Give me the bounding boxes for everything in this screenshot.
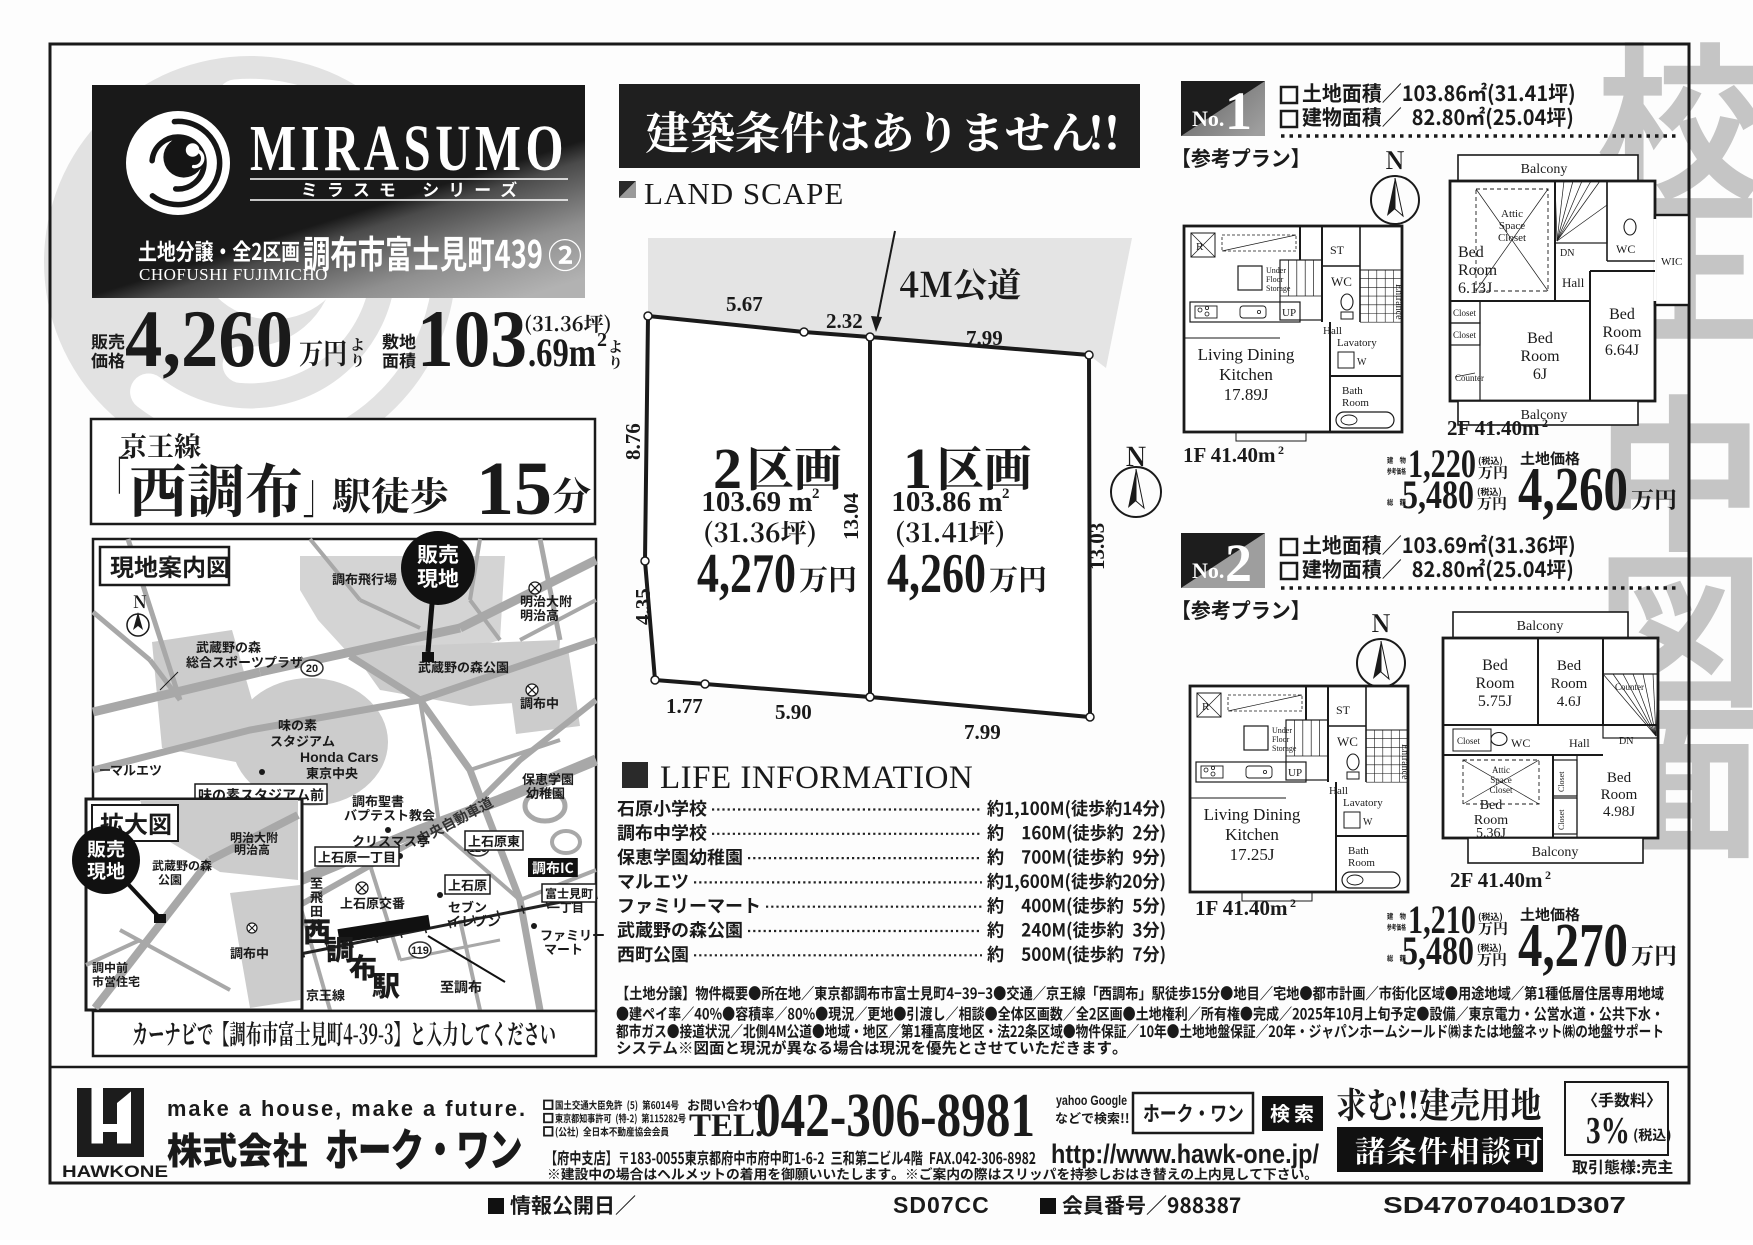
svg-text:4.6J: 4.6J — [1557, 694, 1582, 710]
svg-text:Closet: Closet — [1557, 771, 1566, 792]
svg-text:6.64J: 6.64J — [1605, 342, 1639, 359]
svg-text:SD47070401D307: SD47070401D307 — [1383, 1192, 1626, 1218]
svg-text:2: 2 — [1002, 486, 1010, 502]
svg-text:17.25J: 17.25J — [1230, 845, 1275, 864]
svg-text:6.13J: 6.13J — [1458, 280, 1492, 297]
svg-text:2: 2 — [1278, 443, 1284, 457]
svg-text:Space: Space — [1499, 220, 1525, 232]
svg-text:4.35: 4.35 — [631, 588, 655, 625]
svg-text:Under: Under — [1272, 726, 1292, 735]
svg-text:13.04: 13.04 — [839, 492, 863, 540]
svg-text:1F 41.40m: 1F 41.40m — [1183, 443, 1276, 467]
svg-text:4,260: 4,260 — [1518, 456, 1628, 524]
svg-text:2: 2 — [597, 329, 607, 351]
svg-text:UP: UP — [1288, 767, 1302, 779]
svg-text:Closet: Closet — [1453, 330, 1477, 340]
svg-text:Room: Room — [1458, 262, 1498, 279]
svg-text:5.90: 5.90 — [775, 700, 812, 724]
svg-text:4,260: 4,260 — [125, 293, 293, 384]
svg-text:Storage: Storage — [1272, 744, 1297, 753]
svg-text:MIRASUMO: MIRASUMO — [250, 112, 568, 185]
svg-text:SD07CC: SD07CC — [893, 1192, 990, 1218]
svg-text:2: 2 — [1225, 533, 1252, 593]
svg-text:17.89J: 17.89J — [1224, 385, 1269, 404]
svg-text:20: 20 — [306, 663, 318, 675]
svg-text:Room: Room — [1520, 348, 1560, 365]
svg-text:Room: Room — [1348, 857, 1375, 869]
svg-text:1.77: 1.77 — [666, 694, 703, 718]
svg-text:Hall: Hall — [1562, 275, 1585, 290]
svg-text:W: W — [1357, 357, 1367, 368]
svg-text:2F 41.40m: 2F 41.40m — [1450, 868, 1543, 892]
svg-text:4.98J: 4.98J — [1603, 804, 1635, 820]
svg-text:Room: Room — [1475, 675, 1515, 692]
svg-text:Entrance: Entrance — [1399, 744, 1410, 780]
svg-text:Attic: Attic — [1492, 765, 1510, 775]
svg-text:Lavatory: Lavatory — [1337, 337, 1377, 349]
svg-text:2: 2 — [1542, 416, 1548, 430]
svg-text:Closet: Closet — [1457, 736, 1481, 746]
svg-text:1: 1 — [1225, 81, 1252, 141]
svg-text:make a house, make a future.: make a house, make a future. — [167, 1096, 527, 1121]
svg-text:4,260: 4,260 — [887, 543, 986, 605]
svg-text:4,270: 4,270 — [1518, 912, 1628, 980]
svg-text:WC: WC — [1511, 736, 1530, 750]
svg-text:Room: Room — [1551, 676, 1588, 692]
svg-text:CHOFUSHI FUJIMICHO: CHOFUSHI FUJIMICHO — [139, 265, 328, 284]
svg-text:1F 41.40m: 1F 41.40m — [1195, 896, 1288, 920]
svg-text:5.67: 5.67 — [726, 292, 763, 316]
svg-text:15: 15 — [476, 447, 552, 531]
svg-text:Closet: Closet — [1557, 809, 1566, 830]
svg-text:No.: No. — [1192, 558, 1224, 583]
svg-text:Under: Under — [1266, 266, 1286, 275]
svg-text:HAWKONE: HAWKONE — [62, 1163, 168, 1181]
svg-text:Lavatory: Lavatory — [1343, 797, 1383, 809]
svg-text:.69m: .69m — [528, 330, 596, 375]
svg-text:LAND SCAPE: LAND SCAPE — [644, 176, 844, 211]
svg-text:Living Dining: Living Dining — [1198, 345, 1295, 364]
svg-text:7.99: 7.99 — [964, 720, 1001, 744]
svg-text:Bed: Bed — [1609, 306, 1635, 323]
svg-text:No.: No. — [1192, 106, 1224, 131]
svg-text:Room: Room — [1342, 397, 1369, 409]
svg-text:103: 103 — [417, 293, 527, 384]
svg-text:http://www.hawk-one.jp/: http://www.hawk-one.jp/ — [1051, 1139, 1319, 1169]
svg-text:R: R — [1202, 701, 1210, 713]
svg-text:4,270: 4,270 — [697, 543, 796, 605]
svg-text:Room: Room — [1601, 787, 1638, 803]
svg-text:ST: ST — [1336, 703, 1351, 717]
svg-text:Bath: Bath — [1342, 385, 1363, 397]
svg-text:7.99: 7.99 — [966, 326, 1003, 350]
svg-text:Hall: Hall — [1569, 736, 1590, 750]
svg-text:13.03: 13.03 — [1085, 523, 1109, 570]
svg-text:103.86 m: 103.86 m — [891, 486, 1002, 518]
svg-text:WC: WC — [1616, 242, 1635, 256]
svg-text:Living Dining: Living Dining — [1204, 805, 1301, 824]
svg-text:8.76: 8.76 — [621, 423, 645, 460]
svg-text:5,480: 5,480 — [1402, 928, 1474, 973]
svg-text:DN: DN — [1560, 248, 1574, 259]
svg-text:2: 2 — [812, 486, 820, 502]
svg-text:yahoo Google: yahoo Google — [1056, 1092, 1127, 1108]
svg-text:Bed: Bed — [1482, 657, 1508, 674]
svg-text:Kitchen: Kitchen — [1225, 825, 1279, 844]
svg-text:WC: WC — [1337, 734, 1358, 749]
svg-text:5.75J: 5.75J — [1478, 693, 1512, 710]
svg-text:3%: 3% — [1586, 1110, 1630, 1152]
svg-text:Bed: Bed — [1557, 658, 1582, 674]
svg-text:Attic: Attic — [1501, 208, 1523, 220]
svg-text:W: W — [1363, 817, 1373, 828]
svg-text:Bath: Bath — [1348, 845, 1369, 857]
svg-text:042-306-8981: 042-306-8981 — [756, 1082, 1035, 1150]
svg-text:WC: WC — [1331, 274, 1352, 289]
svg-text:103.69 m: 103.69 m — [701, 486, 812, 518]
svg-text:Bed: Bed — [1458, 244, 1484, 261]
svg-text:Bed: Bed — [1607, 770, 1632, 786]
svg-text:Space: Space — [1490, 775, 1512, 785]
svg-text:WIC: WIC — [1661, 256, 1682, 268]
svg-text:Entrance: Entrance — [1393, 284, 1404, 320]
svg-text:2F 41.40m: 2F 41.40m — [1447, 416, 1540, 440]
svg-text:2: 2 — [1290, 896, 1296, 910]
svg-text:Balcony: Balcony — [1532, 845, 1579, 860]
svg-text:6J: 6J — [1533, 366, 1547, 383]
svg-text:Balcony: Balcony — [1521, 162, 1568, 177]
svg-text:Honda Cars: Honda Cars — [300, 749, 379, 765]
svg-text:Bed: Bed — [1480, 798, 1503, 813]
svg-text:Kitchen: Kitchen — [1219, 365, 1273, 384]
svg-text:Floor: Floor — [1266, 275, 1284, 284]
svg-text:2: 2 — [1545, 868, 1551, 882]
svg-text:Closet: Closet — [1489, 785, 1513, 795]
svg-text:R: R — [1196, 241, 1204, 253]
svg-text:ST: ST — [1330, 243, 1345, 257]
svg-text:DN: DN — [1619, 736, 1633, 747]
svg-text:5,480: 5,480 — [1402, 472, 1474, 517]
svg-text:LIFE INFORMATION: LIFE INFORMATION — [660, 760, 973, 796]
svg-text:Hall: Hall — [1323, 325, 1342, 337]
svg-text:UP: UP — [1282, 307, 1296, 319]
svg-text:TEL.: TEL. — [689, 1108, 763, 1144]
svg-text:Hall: Hall — [1329, 785, 1348, 797]
svg-text:Floor: Floor — [1272, 735, 1290, 744]
svg-text:Storage: Storage — [1266, 284, 1291, 293]
svg-text:119: 119 — [411, 945, 429, 957]
svg-text:2.32: 2.32 — [826, 309, 863, 333]
svg-text:Closet: Closet — [1453, 308, 1477, 318]
svg-text:Room: Room — [1602, 324, 1642, 341]
svg-text:Bed: Bed — [1527, 330, 1553, 347]
svg-text:Closet: Closet — [1498, 232, 1526, 244]
svg-text:Balcony: Balcony — [1517, 619, 1564, 634]
